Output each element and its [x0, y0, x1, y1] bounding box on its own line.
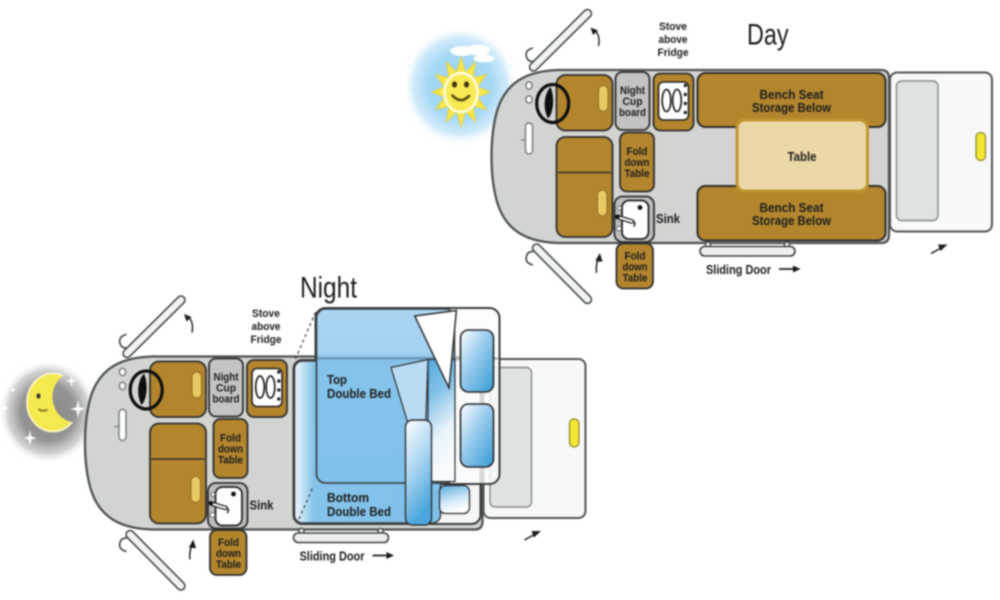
svg-text:Bottom: Bottom	[327, 490, 369, 505]
svg-text:Top: Top	[327, 372, 347, 387]
svg-text:Fridge: Fridge	[658, 47, 689, 59]
svg-text:above: above	[659, 34, 688, 46]
svg-text:above: above	[252, 321, 281, 333]
svg-text:Table: Table	[788, 149, 817, 164]
svg-text:Double Bed: Double Bed	[327, 386, 391, 401]
svg-text:Stove: Stove	[659, 21, 687, 33]
svg-text:Fridge: Fridge	[251, 334, 282, 346]
svg-text:Night: Night	[300, 272, 358, 305]
svg-text:Storage Below: Storage Below	[752, 100, 832, 115]
svg-text:Double Bed: Double Bed	[327, 504, 391, 519]
svg-text:Day: Day	[747, 19, 789, 52]
svg-text:Storage Below: Storage Below	[752, 213, 832, 228]
svg-text:Stove: Stove	[252, 308, 280, 320]
